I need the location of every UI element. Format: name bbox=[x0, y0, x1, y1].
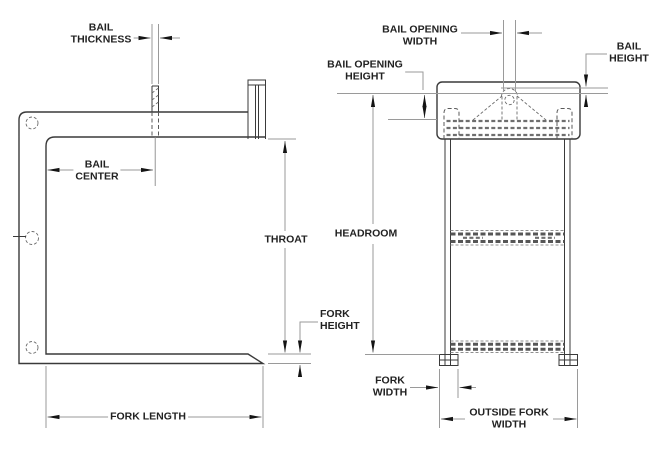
dim-label-fork-width: FORK WIDTH bbox=[371, 376, 409, 399]
bail-arch-sides bbox=[502, 97, 517, 120]
bail-hatch bbox=[152, 88, 159, 107]
bail-opening-height-leader bbox=[402, 72, 423, 90]
mast-plate bbox=[248, 80, 266, 139]
dim-label-throat: THROAT bbox=[263, 234, 310, 246]
bail-height-leader bbox=[586, 54, 607, 87]
mount-hole-bottom bbox=[26, 342, 38, 354]
head-bar bbox=[437, 82, 580, 139]
dim-label-fork-height: FORK HEIGHT bbox=[318, 309, 362, 332]
mid-member-bands bbox=[451, 234, 565, 242]
head-bar-hidden-rows bbox=[447, 121, 570, 135]
dim-label-bail-opening-width: BAIL OPENING WIDTH bbox=[380, 25, 460, 48]
dim-label-headroom: HEADROOM bbox=[333, 228, 399, 240]
dim-label-outside-fork-width: OUTSIDE FORK WIDTH bbox=[467, 408, 550, 431]
fork-side-outline bbox=[19, 112, 266, 364]
bail-gussets bbox=[473, 96, 546, 120]
dim-label-bail-center: BAIL CENTER bbox=[73, 160, 120, 183]
side-view-dimensions bbox=[46, 24, 319, 428]
side-rails bbox=[445, 139, 570, 366]
bottom-member-bands bbox=[451, 344, 565, 349]
fork-height-leader bbox=[300, 322, 319, 353]
bail-hidden bbox=[152, 112, 159, 137]
mount-hole-middle bbox=[26, 232, 39, 245]
dim-label-bail-opening-height: BAIL OPENING HEIGHT bbox=[325, 60, 405, 83]
front-view bbox=[437, 82, 580, 366]
dim-label-fork-length: FORK LENGTH bbox=[108, 411, 188, 423]
dim-label-bail-thickness: BAIL THICKNESS bbox=[69, 23, 134, 46]
mount-hole-top bbox=[26, 117, 38, 129]
dim-label-bail-height: BAIL HEIGHT bbox=[607, 42, 651, 65]
extension-lines-side bbox=[46, 24, 311, 428]
fork-feet bbox=[440, 355, 578, 366]
side-view bbox=[13, 80, 266, 364]
bail-opening-circle bbox=[505, 95, 514, 104]
diagram-canvas: BAIL THICKNESS BAIL CENTER THROAT FORK H… bbox=[0, 0, 659, 455]
